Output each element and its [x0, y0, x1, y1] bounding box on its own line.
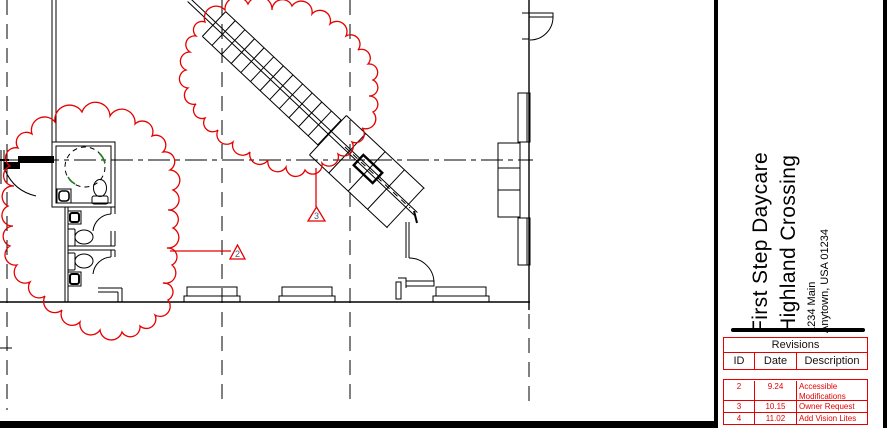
revision-overlay: 2 3 [2, 0, 378, 340]
storefront-window [282, 287, 332, 296]
restroom-suite [0, 142, 122, 302]
wall-pilaster [518, 93, 530, 142]
project-name-line1: First Step Daycare [747, 152, 775, 333]
toilet [75, 230, 93, 244]
drawing-sheet: 2 3 First Step Daycare Highland Crossing… [0, 0, 894, 428]
revision-row: 2 9.24 Accessible Modifications [724, 380, 867, 401]
title-divider-rule [731, 328, 865, 332]
revision-cloud-restrooms [2, 102, 180, 340]
project-name-line2: Highland Crossing [775, 152, 803, 333]
stall-door-swing [93, 257, 111, 274]
project-address-line1: 1234 Main [806, 229, 819, 333]
toilet [75, 254, 93, 268]
revisions-col-date: Date [755, 353, 797, 369]
project-name: First Step Daycare Highland Crossing [747, 152, 803, 333]
revisions-col-description: Description [797, 353, 867, 369]
door-swing [409, 258, 434, 283]
wall-pilaster [518, 218, 530, 265]
revisions-table-header: Revisions ID Date Description [723, 337, 868, 370]
storefront-window [436, 287, 486, 296]
toilet [94, 180, 107, 197]
project-address-line2: Anytown, USA 01234 [819, 229, 832, 333]
plan-svg: 2 3 [0, 0, 717, 428]
revisions-col-id: ID [724, 353, 755, 369]
storefront-windows [184, 287, 489, 302]
revision-triangle-3-number: 3 [314, 211, 319, 221]
stall-door-swing [93, 214, 111, 231]
interior-door [396, 222, 434, 299]
entry-door-swing [5, 170, 36, 196]
bottom-edge-bar [0, 421, 717, 428]
revisions-title: Revisions [724, 338, 867, 353]
folding-partition [188, 0, 425, 228]
revision-row: 3 10.15 Owner Request [724, 401, 867, 413]
right-wall-features [498, 93, 530, 265]
revision-triangle-2-number: 2 [235, 249, 240, 259]
toilet-tank [68, 253, 75, 270]
partition-door [354, 155, 417, 223]
revisions-table-rows: 2 9.24 Accessible Modifications 3 10.15 … [723, 379, 868, 425]
wall-block [498, 143, 520, 217]
grid-lines [0, 0, 533, 410]
sheet-border-right [883, 0, 887, 428]
toilet-tank [68, 229, 75, 246]
revision-row: 4 11.02 Add Vision Lites [724, 413, 867, 424]
storefront-window [187, 287, 237, 296]
door-leaf [529, 13, 553, 17]
sheet-border-left [714, 0, 718, 428]
project-address: 1234 Main Anytown, USA 01234 [806, 229, 832, 333]
door-leaf [406, 281, 434, 286]
wall-poche [18, 156, 54, 163]
entry-door-top [522, 13, 553, 40]
door-swing [530, 17, 553, 40]
